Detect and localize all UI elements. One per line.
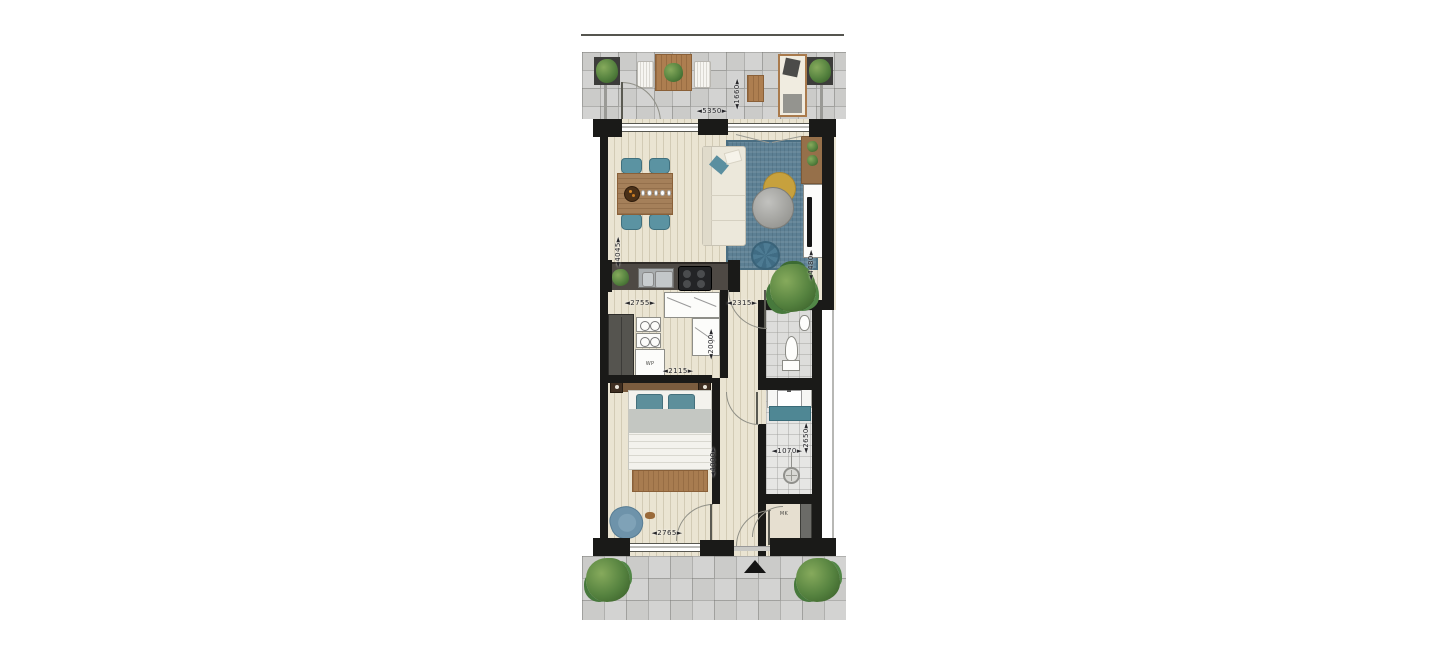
dim-bedroom-depth: ◄4000► [708,437,718,487]
bathroom-door-leaf [756,392,758,424]
wall [758,494,822,504]
dim-entry-zone: ◄2315► [717,298,767,308]
mk-closet-label: MK [774,508,794,520]
balcony-chair [637,61,654,88]
table-plant-icon [664,63,683,82]
storage-closet [608,314,634,378]
bed-duvet [629,433,711,469]
sideboard-plant-icon [807,155,818,166]
wall [593,538,630,558]
table-decor-dots [641,190,671,195]
sideboard-plant-icon [807,141,818,152]
appliance-unit [636,333,661,348]
wall [608,375,712,383]
dim-balcony-width: ◄5350► [687,106,737,116]
wall [728,260,740,292]
building-outline [832,300,834,540]
candle-tray [624,186,640,202]
wall [822,119,834,310]
hand-basin [799,315,810,331]
bed-blanket [629,409,711,433]
dining-chair [649,158,670,174]
lounge-cushion [783,94,802,113]
appliance-unit [636,317,661,332]
balcony-chair [694,61,711,88]
sideboard [801,136,824,184]
cooktop [678,266,712,291]
dim-bedroom-width: ◄2765► [642,528,692,538]
dim-living-depth-left: ◄4045► [613,227,623,277]
entrance-threshold [734,546,770,551]
coffee-table [752,187,794,229]
planter-box [807,57,833,85]
balcony-railing-post [604,84,607,119]
dining-chair [621,214,642,230]
kitchen-sink [638,268,674,288]
wall [698,119,728,135]
gallery-bush-icon [586,558,630,602]
dim-kitchen-counter: ◄2755► [615,298,665,308]
wall [812,300,822,545]
window [622,123,698,132]
lounge-pillow [782,58,800,78]
shaft [800,502,812,542]
slippers [645,512,655,519]
wall [758,378,814,390]
facade-line [581,34,844,36]
bed [628,390,712,470]
wall [770,538,836,558]
planter-plant-icon [809,59,831,83]
balcony-lounge-sofa [778,54,807,117]
pouf [751,241,780,270]
wall [600,119,608,558]
balcony-door-leaf [621,82,623,122]
planter-box [594,57,620,85]
kitchen-cabinet [664,292,720,318]
toilet-tank [782,360,800,371]
dining-chair [621,158,642,174]
dim-bathroom-depth: ◄2650► [801,413,811,463]
dim-kitchen-room: ◄2115► [653,366,703,376]
vanity-sink [777,390,802,407]
bedroom-door-leaf [710,504,712,540]
gallery-bush-icon [796,558,840,602]
dim-kitchen-depth: ◄2000► [706,319,716,369]
wall [758,424,766,502]
hall-door-leaf [764,290,766,328]
shower-drain-icon [783,467,800,484]
sofa [702,146,746,246]
bed-bench [632,470,708,492]
dining-chair [649,214,670,230]
toilet-bowl [785,336,798,361]
balcony-side-table [747,75,764,102]
entrance-arrow-icon [744,560,766,573]
floor-plan: ◄1660► ◄5350► [0,0,1440,648]
wall [600,260,612,292]
balcony-table [655,54,692,91]
bedroom-window [630,543,700,552]
dining-table [617,173,673,215]
planter-plant-icon [596,59,618,83]
balcony-railing-post [820,84,823,119]
dim-living-depth-right: ◄4480► [806,240,816,290]
kitchen-counter [608,262,728,290]
vanity-counter [767,387,812,408]
sliding-door-window [728,123,809,132]
sofa-pillow-white [724,149,743,165]
